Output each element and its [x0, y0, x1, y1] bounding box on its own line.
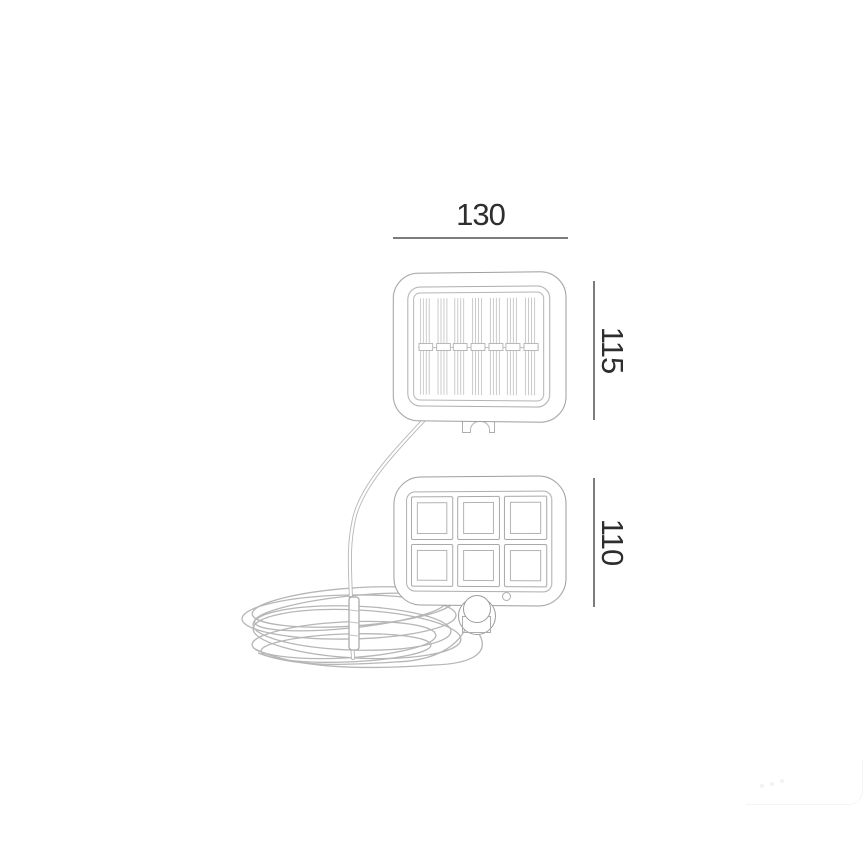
lamp-segment-grid: [406, 491, 552, 593]
led-segment: [411, 496, 453, 539]
sensor-wire: [255, 628, 482, 668]
solar-cell-column: [472, 298, 484, 395]
solar-cell-column: [490, 298, 502, 395]
dimension-width-line: [393, 237, 568, 239]
led-segment: [504, 496, 547, 540]
led-segment: [411, 543, 453, 586]
led-segment-lens: [463, 549, 494, 581]
dimension-lamp-height-label: 110: [596, 487, 628, 597]
solar-cell-column: [437, 298, 449, 395]
solar-cell-column: [455, 298, 467, 395]
led-segment-lens: [510, 502, 541, 534]
cable-tie-icon: [349, 597, 359, 650]
solar-cell-column: [525, 298, 537, 396]
led-segment: [457, 543, 500, 587]
cable-and-coil-drawing: [0, 0, 868, 868]
dimension-panel-height-label: 115: [596, 295, 628, 405]
led-segment: [457, 496, 500, 540]
indicator-dot: [502, 592, 511, 601]
led-segment-lens: [463, 502, 494, 534]
solar-cell-area: [413, 291, 544, 401]
led-segment-lens: [510, 550, 541, 582]
led-segment: [504, 544, 547, 588]
led-segment-lens: [417, 502, 447, 533]
pir-motion-sensor: [463, 595, 491, 623]
led-flood-lamp: [393, 475, 566, 606]
panel-mount-dome: [470, 421, 490, 433]
led-segment-lens: [417, 549, 447, 580]
faint-corner-watermark: [746, 760, 863, 805]
lamp-frame: [393, 475, 566, 606]
dimension-width-label: 130: [393, 197, 568, 233]
solar-cell-column: [420, 298, 432, 394]
solar-panel-frame: [393, 271, 567, 423]
solar-cell-column: [507, 298, 519, 396]
solar-panel-inner-frame: [407, 285, 550, 407]
dimension-drawing: 130 115: [0, 0, 868, 868]
solar-panel: [393, 271, 567, 423]
